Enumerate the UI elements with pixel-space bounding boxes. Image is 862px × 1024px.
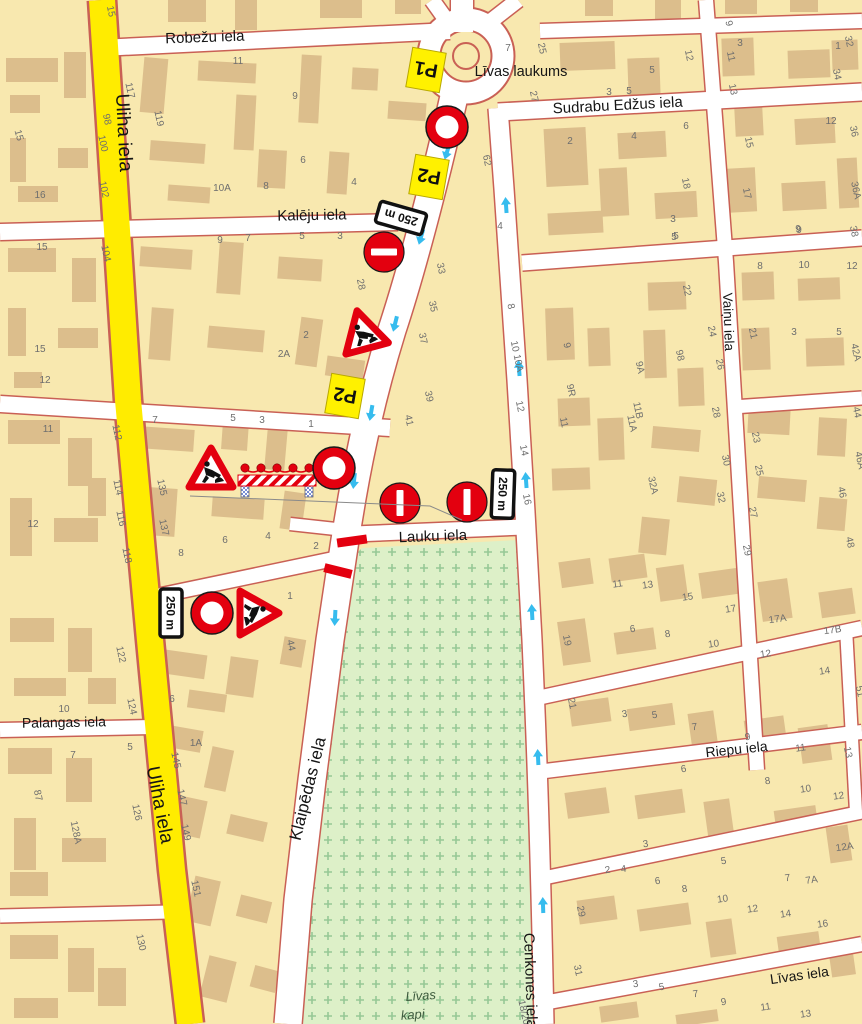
building	[72, 258, 96, 302]
building	[798, 277, 841, 300]
sign-plate-250-icon: 250 m	[491, 470, 515, 519]
building	[544, 127, 589, 187]
house-number: 4	[265, 531, 271, 542]
house-number: 10	[799, 783, 812, 796]
house-number: 16	[34, 190, 46, 201]
house-number: 10	[707, 638, 720, 651]
place-label-livas-kapi-1: Līvas	[405, 987, 437, 1004]
building	[68, 628, 92, 672]
traffic-scheme-map: 1516151512111298100102104122124126128A87…	[0, 0, 862, 1024]
house-number: 1	[308, 419, 314, 430]
house-number: 10	[798, 260, 810, 271]
street-label-kaleju: Kalēju iela	[277, 206, 347, 224]
building	[552, 467, 591, 490]
building	[216, 241, 244, 295]
house-number: 2	[313, 541, 319, 552]
house-number: 12	[832, 790, 845, 803]
house-number: 3	[791, 327, 797, 338]
building	[98, 968, 126, 1006]
building	[560, 41, 616, 71]
street-label-cenkones: Cenkones iela	[520, 933, 540, 1024]
building	[817, 497, 848, 531]
building	[257, 149, 287, 188]
building	[10, 95, 40, 113]
house-number: 1	[835, 41, 841, 52]
building	[547, 211, 603, 236]
building	[677, 476, 718, 506]
house-number: 11	[795, 742, 807, 754]
house-number: 5	[230, 413, 236, 424]
building	[806, 337, 845, 366]
house-number: 11	[612, 578, 624, 590]
building	[558, 558, 593, 588]
house-number: 8	[757, 261, 763, 272]
sign-ring-icon	[426, 106, 468, 148]
building	[609, 554, 648, 583]
house-number: 7	[70, 750, 76, 761]
street-label-robezu: Robežu iela	[165, 28, 245, 48]
sign-ring-icon	[191, 592, 233, 634]
building	[68, 948, 94, 992]
building	[140, 57, 169, 114]
house-number: 4	[497, 221, 503, 232]
building	[725, 0, 757, 14]
building	[734, 107, 763, 136]
house-number: 12	[39, 375, 51, 386]
sign-plate-p-icon: P1	[406, 47, 446, 92]
building	[818, 588, 855, 618]
house-number: 7	[152, 415, 158, 426]
house-number: 1	[287, 591, 293, 602]
building	[587, 328, 610, 367]
building	[66, 758, 92, 802]
building	[320, 0, 362, 18]
building	[148, 307, 174, 360]
house-number: 8	[178, 548, 184, 559]
house-number: 15	[36, 242, 48, 253]
building	[235, 0, 257, 30]
building	[277, 256, 322, 281]
building	[225, 656, 258, 698]
house-number: 7	[245, 233, 251, 244]
building	[88, 678, 116, 704]
building	[817, 417, 847, 456]
building	[198, 60, 257, 83]
building	[10, 935, 58, 959]
building	[781, 181, 826, 211]
building	[327, 151, 350, 194]
house-number: 10	[716, 893, 729, 906]
house-number: 3	[337, 231, 343, 242]
house-number: 6	[683, 121, 689, 132]
building	[64, 52, 86, 98]
house-number: 15	[34, 344, 46, 355]
building	[58, 148, 88, 168]
building	[8, 308, 26, 356]
building	[757, 476, 807, 502]
house-number: 6	[169, 694, 175, 705]
building	[14, 818, 36, 870]
building	[742, 271, 775, 300]
building	[788, 49, 831, 78]
sign-ring-icon	[313, 447, 355, 489]
sign-no-entry-icon	[380, 483, 420, 523]
house-number: 9	[217, 235, 223, 246]
house-number: 5	[649, 65, 655, 76]
building	[14, 678, 66, 696]
svg-text:250 m: 250 m	[164, 596, 178, 630]
building	[395, 0, 421, 14]
street-lauku-west-stub	[290, 524, 354, 531]
building	[599, 167, 629, 216]
street-label-lauku: Lauku iela	[398, 527, 468, 546]
building	[6, 58, 58, 82]
building	[139, 246, 192, 270]
house-number: 2	[567, 136, 573, 147]
house-number: 5	[299, 231, 305, 242]
house-number: 11	[43, 424, 54, 435]
svg-text:250 m: 250 m	[495, 477, 510, 511]
house-number: 9	[795, 224, 801, 235]
house-number: 12	[746, 903, 759, 916]
place-label-livas-kapi-2: kapi	[400, 1006, 426, 1023]
building	[706, 918, 737, 957]
building	[585, 0, 613, 16]
house-number: 16	[816, 918, 829, 931]
building	[8, 748, 52, 774]
house-number: 2	[303, 330, 309, 341]
house-number: 15	[681, 591, 694, 604]
house-number: 11	[233, 56, 244, 67]
street-bottom-left	[0, 912, 170, 916]
house-number: 4	[351, 177, 357, 188]
house-number: 3	[737, 38, 743, 49]
house-number: 4	[631, 131, 637, 142]
house-number: 10A	[213, 183, 231, 194]
house-number: 8	[263, 181, 269, 192]
house-number: 14	[779, 908, 792, 921]
building	[790, 0, 818, 12]
house-number: 7A	[805, 874, 819, 887]
sign-plate-250-icon: 250 m	[160, 589, 182, 637]
house-number: 9	[292, 91, 298, 102]
building	[545, 308, 575, 361]
house-number: 12	[759, 648, 772, 661]
building	[8, 248, 56, 272]
building	[298, 55, 322, 124]
house-number: 13	[641, 579, 654, 592]
building	[54, 518, 98, 542]
building	[14, 372, 42, 388]
building	[655, 0, 681, 20]
building	[58, 328, 98, 348]
building	[149, 140, 205, 164]
building	[627, 57, 660, 98]
house-number: 6	[222, 535, 228, 546]
house-number: 3	[670, 214, 676, 225]
building	[617, 131, 666, 159]
street-label-vainu: Vaiņu iela	[720, 292, 737, 351]
house-number: 2A	[278, 349, 291, 360]
house-number: 3	[259, 415, 265, 426]
building	[168, 0, 206, 22]
sign-plate-p-icon: P2	[325, 373, 365, 418]
building	[234, 95, 257, 151]
house-number: 14	[818, 665, 831, 678]
building	[638, 517, 670, 556]
house-number: 7	[505, 43, 511, 54]
building	[677, 368, 704, 407]
building	[10, 618, 54, 642]
house-number: 1A	[190, 738, 203, 749]
house-number: 5	[836, 327, 842, 338]
building	[654, 191, 697, 219]
sign-plate-p-icon: P2	[409, 154, 449, 199]
house-number: 5	[671, 232, 677, 243]
place-label-livas-laukums: Līvas laukums	[475, 64, 568, 80]
svg-text:P2: P2	[332, 382, 359, 407]
building	[211, 496, 264, 520]
house-number: 12	[825, 116, 837, 127]
building	[651, 426, 701, 452]
house-number: 6	[300, 155, 306, 166]
building	[88, 478, 106, 516]
building	[387, 101, 426, 122]
house-number: 13	[799, 1008, 812, 1021]
street-right-2	[733, 398, 862, 407]
street-label-uliha-top: Uliha iela	[111, 93, 136, 173]
house-number: 17	[724, 603, 737, 616]
svg-text:P2: P2	[416, 163, 443, 188]
building	[14, 998, 58, 1018]
street-label-palangas: Palangas iela	[22, 713, 107, 730]
house-number: 12	[27, 519, 39, 530]
building	[167, 185, 210, 204]
building	[10, 138, 26, 182]
building	[10, 872, 48, 896]
building	[351, 67, 378, 90]
house-number: 5	[127, 742, 133, 753]
building	[597, 418, 624, 461]
house-number: 12	[846, 261, 858, 272]
map-canvas: 1516151512111298100102104122124126128A87…	[0, 0, 862, 1024]
house-number: 11	[760, 1001, 772, 1013]
svg-text:P1: P1	[413, 56, 440, 81]
sign-no-entry-icon	[364, 232, 404, 272]
